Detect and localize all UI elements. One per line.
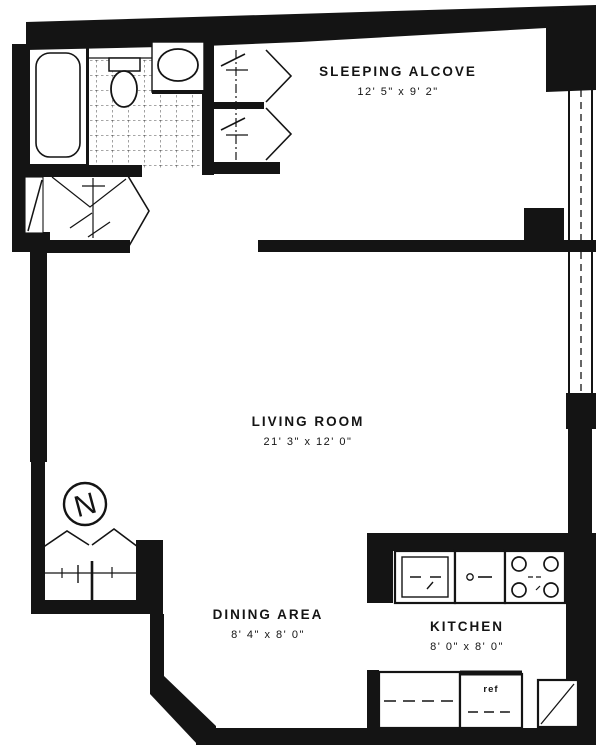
bifold-door-icon [92, 529, 138, 547]
door-slash [70, 213, 92, 228]
wall-segment-top-right-corner [546, 7, 596, 92]
bifold-door-icon [266, 108, 291, 160]
kitchen-fixtures: ref [379, 551, 578, 728]
wall-segment-closet-bottom [202, 162, 280, 174]
wall-segment-kitchen-left-upper [367, 533, 393, 603]
dishwasher-fixture [455, 551, 505, 603]
wall-segment-kitchen-right [566, 533, 596, 680]
wall-segment-left-mid [30, 250, 47, 462]
wall-segment-left-lower [31, 460, 45, 612]
wall-segment-top [26, 5, 596, 50]
kitchen-sink-fixture [395, 551, 455, 603]
floor-plan-page: N [0, 0, 600, 747]
room-dims-kitchen: 8' 0" x 8' 0" [430, 641, 504, 653]
floor-plan-drawing: N [0, 0, 600, 747]
door-slash [221, 118, 245, 130]
room-dims-sleeping-alcove: 12' 5" x 9' 2" [357, 86, 438, 98]
bathroom-sink-fixture [152, 42, 204, 92]
toilet-fixture [109, 58, 140, 107]
wall-segment-dressing-bottom [47, 240, 130, 253]
room-label-living-room: LIVING ROOM [252, 414, 365, 429]
room-dims-dining-area: 8' 4" x 8' 0" [231, 629, 305, 641]
north-arrow: N [64, 483, 106, 525]
bifold-door-icon [128, 176, 149, 246]
door-slash [221, 54, 245, 66]
room-label-kitchen: KITCHEN [430, 619, 504, 634]
corner-cabinet-fixture [538, 680, 578, 727]
room-dims-living-room: 21' 3" x 12' 0" [264, 436, 353, 448]
refrigerator-label: ref [483, 684, 498, 695]
bottom-left-closet [42, 529, 138, 600]
bifold-door-icon [52, 177, 126, 207]
bathtub-fixture [29, 45, 87, 165]
wall-segment-closet-divider [212, 102, 264, 109]
wall-segment-diagonal [150, 676, 216, 745]
wall-segment-right-mid-block [566, 393, 596, 429]
stove-fixture [505, 551, 565, 603]
bifold-door-icon [42, 531, 89, 548]
wall-segment-bl-closet-right [136, 540, 163, 602]
refrigerator-fixture: ref [460, 673, 522, 728]
wall-segment-alcove-divider-block [524, 208, 564, 252]
room-label-sleeping-alcove: SLEEPING ALCOVE [319, 64, 477, 79]
window-living-room [569, 252, 592, 393]
base-counter [379, 672, 460, 728]
room-label-dining-area: DINING AREA [213, 607, 324, 622]
wall-segment-bl-closet-bottom [31, 600, 163, 614]
bifold-door-icon [266, 50, 291, 102]
wall-segment-bottom [196, 728, 596, 745]
wall-segment-left-step [12, 232, 50, 252]
wall-segment-below-closet [150, 614, 164, 680]
north-label: N [71, 487, 100, 524]
window-alcove [569, 90, 592, 240]
bathroom [29, 42, 204, 168]
wall-segment-kitchen-top [367, 533, 596, 551]
door-slash [88, 222, 110, 237]
wall-segment-right-column [568, 429, 592, 551]
wall-segment-bottom-right [578, 678, 596, 730]
